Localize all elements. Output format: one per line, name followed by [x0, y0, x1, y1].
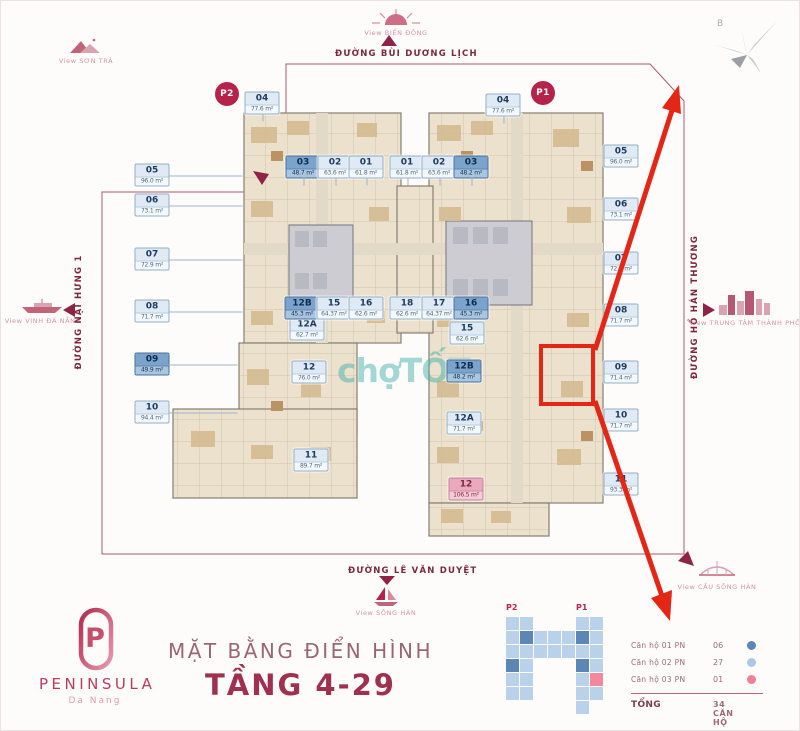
trung-tam-view-block: View TRUNG TÂM THÀNH PHỐ	[703, 289, 787, 327]
unit-connector-line	[262, 114, 263, 122]
legend-rows: Căn hộ 01 PN06Căn hộ 02 PN27Căn hộ 03 PN…	[631, 637, 773, 688]
unit-number: 03	[287, 157, 320, 170]
unit-connector-line	[169, 205, 243, 206]
mini-plan-cell	[548, 631, 561, 644]
unit-area: 73.1 m²	[136, 208, 169, 216]
cau-song-han-view-block: View CẦU SÔNG HÀN	[685, 557, 749, 591]
mini-plan-cell	[520, 659, 533, 672]
unit-number: 05	[605, 146, 638, 159]
unit-callout-p2-08: 0871.7 m²	[135, 300, 170, 323]
unit-area: 64.37 m²	[423, 311, 456, 319]
mini-plan-cell	[506, 645, 519, 658]
view-label-cau-song-han: View CẦU SÔNG HÀN	[678, 583, 757, 591]
unit-connector-line	[471, 178, 472, 186]
unit-area: 48.7 m²	[287, 170, 320, 178]
unit-area: 62.6 m²	[350, 311, 383, 319]
unit-callout-p1-09: 0971.4 m²	[604, 361, 639, 384]
legend-color-dot	[747, 658, 756, 667]
sun-icon	[368, 7, 424, 27]
unit-callout-p2-12a: 12A62.7 m²	[290, 318, 325, 341]
mini-plan-cell	[520, 687, 533, 700]
unit-callout-p1-18: 1862.6 m²	[390, 297, 425, 320]
unit-callout-p1-02: 0263.6 m²	[422, 156, 457, 179]
legend-row: Căn hộ 01 PN06	[631, 637, 773, 654]
ship-icon	[20, 297, 66, 315]
unit-connector-line	[335, 178, 336, 186]
unit-callout-p2-16: 1662.6 m²	[349, 297, 384, 320]
tower-badge-p2: P2	[215, 82, 239, 106]
title-line1: MẶT BẰNG ĐIỂN HÌNH	[158, 639, 443, 663]
unit-number: 12B	[448, 361, 481, 374]
unit-callout-p1-06: 0673.1 m²	[604, 198, 639, 221]
unit-callout-p2-06: 0673.1 m²	[135, 194, 170, 217]
page-title: MẶT BẰNG ĐIỂN HÌNH TẦNG 4-29	[158, 639, 443, 702]
unit-area: 61.8 m²	[391, 170, 424, 178]
brand-monogram: P	[39, 607, 151, 671]
unit-area: 45.3 m²	[286, 311, 319, 319]
legend-table: Căn hộ 01 PN06Căn hộ 02 PN27Căn hộ 03 PN…	[631, 637, 773, 727]
legend-color-dot	[747, 675, 756, 684]
unit-connector-line	[366, 178, 367, 186]
view-label-trung-tam: View TRUNG TÂM THÀNH PHỐ	[689, 319, 800, 327]
unit-callout-p1-15: 1562.6 m²	[450, 322, 485, 345]
mini-plan-cell	[590, 687, 603, 700]
unit-area: 76.0 m²	[293, 375, 326, 383]
unit-number: 02	[423, 157, 456, 170]
unit-number: 12B	[286, 298, 319, 311]
unit-callout-p2-12: 1276.0 m²	[292, 361, 327, 384]
mini-plan-cell	[590, 645, 603, 658]
unit-area: 106.5 m²	[450, 492, 483, 500]
unit-callout-p1-12a: 12A71.7 m²	[447, 412, 482, 435]
unit-area: 48.2 m²	[448, 374, 481, 382]
floor-plan-poster: chợTỐT 0477.6 m²0596.0 m²0673.1 m²0772.9…	[0, 0, 800, 731]
unit-callout-p1-07: 0772.9 m²	[604, 252, 639, 275]
mini-plan-tower-label-p1: P1	[576, 603, 588, 612]
unit-number: 15	[451, 323, 484, 336]
bridge-icon	[697, 557, 737, 581]
unit-connector-line	[503, 116, 504, 124]
unit-number: 10	[136, 402, 169, 415]
legend-row-value: 27	[713, 658, 747, 667]
unit-number: 15	[318, 298, 351, 311]
mini-plan-cell	[534, 645, 547, 658]
unit-callout-p1-03: 0348.2 m²	[454, 156, 489, 179]
unit-area: 62.7 m²	[291, 332, 324, 340]
unit-callout-p2-04: 0477.6 m²	[245, 92, 280, 115]
unit-area: 49.9 m²	[136, 367, 169, 375]
unit-connector-line	[439, 178, 440, 186]
unit-number: 09	[605, 362, 638, 375]
legend-row-label: Căn hộ 03 PN	[631, 675, 713, 684]
unit-callout-p1-05: 0596.0 m²	[604, 145, 639, 168]
unit-area: 71.7 m²	[136, 314, 169, 322]
view-label-bien-dong: View BIỂN ĐÔNG	[364, 29, 427, 37]
mini-plan-cell	[520, 673, 533, 686]
unit-area: 96.0 m²	[136, 178, 169, 186]
unit-connector-line	[303, 178, 304, 186]
unit-callout-p2-10: 1094.4 m²	[135, 401, 170, 424]
tower-badge-p1: P1	[531, 81, 555, 105]
unit-callout-p1-10: 1071.7 m²	[604, 409, 639, 432]
unit-number: 02	[319, 157, 352, 170]
unit-area: 48.2 m²	[455, 170, 488, 178]
unit-callout-p1-12b: 12B48.2 m²	[447, 360, 482, 383]
mini-plan-cell	[576, 645, 589, 658]
unit-connector-line	[169, 364, 238, 365]
unit-number: 06	[605, 199, 638, 212]
unit-area: 77.6 m²	[487, 108, 520, 116]
legend-row-value: 06	[713, 641, 747, 650]
unit-area: 93.3 m²	[605, 487, 638, 495]
sailboat-icon	[372, 585, 400, 607]
unit-connector-line	[169, 311, 243, 312]
mountain-icon	[68, 35, 104, 55]
mini-plan-cell	[576, 673, 589, 686]
mini-plan-cell	[590, 673, 603, 686]
unit-number: 06	[136, 195, 169, 208]
unit-callout-p2-09: 0949.9 m²	[135, 353, 170, 376]
unit-number: 03	[455, 157, 488, 170]
unit-number: 04	[246, 93, 279, 106]
unit-callout-p2-03: 0348.7 m²	[286, 156, 321, 179]
view-label-vinh-da-nang: View VỊNH ĐÀ NẴNG	[5, 317, 82, 325]
song-han-view-block: View SÔNG HÀN	[346, 585, 426, 617]
unit-callout-p2-12b: 12B45.3 m²	[285, 297, 320, 320]
unit-number: 18	[391, 298, 424, 311]
view-label-song-han: View SÔNG HÀN	[356, 609, 417, 617]
unit-number: 08	[136, 301, 169, 314]
title-line2: TẦNG 4-29	[158, 668, 443, 702]
top-street-block: View BIỂN ĐÔNG	[331, 7, 461, 37]
mini-plan-cell	[590, 659, 603, 672]
unit-connector-line	[169, 259, 243, 260]
unit-callout-p1-12: 12106.5 m²	[449, 478, 484, 501]
unit-callout-p1-17: 1764.37 m²	[422, 297, 457, 320]
unit-area: 62.6 m²	[451, 336, 484, 344]
unit-area: 72.9 m²	[605, 266, 638, 274]
unit-number: 07	[605, 253, 638, 266]
mini-plan-cell	[534, 631, 547, 644]
mini-plan-cell	[506, 659, 519, 672]
unit-area: 62.6 m²	[391, 311, 424, 319]
mini-plan-cell	[520, 631, 533, 644]
unit-area: 72.9 m²	[136, 262, 169, 270]
unit-number: 16	[455, 298, 488, 311]
mini-plan-cell	[506, 617, 519, 630]
unit-area: 77.6 m²	[246, 106, 279, 114]
legend-total-label: TỔNG	[631, 700, 713, 727]
unit-number: 01	[350, 157, 383, 170]
unit-area: 61.8 m²	[350, 170, 383, 178]
brand-monogram-letter: P	[85, 623, 105, 654]
brand-subname: Da Nang	[39, 696, 151, 706]
mini-plan-cell	[576, 617, 589, 630]
legend-total-row: TỔNG 34 CĂN HỘ	[631, 700, 773, 727]
unit-callout-p1-04: 0477.6 m²	[486, 94, 521, 117]
mini-plan-cell	[520, 645, 533, 658]
unit-number: 12A	[291, 319, 324, 332]
unit-number: 16	[350, 298, 383, 311]
brand-logo: P PENINSULA Da Nang	[39, 607, 151, 706]
street-label-top: ĐƯỜNG BÙI DƯƠNG LỊCH	[335, 49, 478, 59]
unit-area: 96.0 m²	[605, 159, 638, 167]
legend-row: Căn hộ 03 PN01	[631, 671, 773, 688]
unit-callout-p2-07: 0772.9 m²	[135, 248, 170, 271]
unit-callout-p1-08: 0871.7 m²	[604, 304, 639, 327]
mini-plan-cell	[548, 645, 561, 658]
unit-area: 71.7 m²	[605, 423, 638, 431]
unit-connector-line	[169, 412, 238, 413]
unit-number: 04	[487, 95, 520, 108]
unit-area: 89.7 m²	[295, 463, 328, 471]
unit-area: 63.6 m²	[319, 170, 352, 178]
legend-mini-plan: P2P1	[498, 601, 614, 723]
legend-row-label: Căn hộ 02 PN	[631, 658, 713, 667]
unit-area: 45.3 m²	[455, 311, 488, 319]
unit-number: 17	[423, 298, 456, 311]
view-label-son-tra: View SƠN TRÀ	[59, 57, 113, 65]
mini-plan-cell	[590, 617, 603, 630]
street-label-right: ĐƯỜNG HỒ HÁN THƯƠNG	[690, 235, 700, 379]
unit-number: 10	[605, 410, 638, 423]
legend-row-value: 01	[713, 675, 747, 684]
mini-plan-cell	[506, 631, 519, 644]
unit-callout-p1-11: 1193.3 m²	[604, 473, 639, 496]
mini-plan-cell	[576, 701, 589, 714]
unit-area: 71.4 m²	[605, 375, 638, 383]
mini-plan-cell	[576, 631, 589, 644]
son-tra-view-block: View SƠN TRÀ	[31, 35, 141, 65]
unit-callout-p2-11: 1189.7 m²	[294, 449, 329, 472]
city-skyline-icon	[717, 289, 773, 317]
mini-plan-cell	[562, 631, 575, 644]
unit-number: 11	[295, 450, 328, 463]
mini-plan-cell	[506, 673, 519, 686]
unit-area: 73.1 m²	[605, 212, 638, 220]
unit-number: 01	[391, 157, 424, 170]
unit-number: 07	[136, 249, 169, 262]
unit-callout-p1-16: 1645.3 m²	[454, 297, 489, 320]
unit-number: 12A	[448, 413, 481, 426]
mini-plan-cell	[590, 631, 603, 644]
legend-row-label: Căn hộ 01 PN	[631, 641, 713, 650]
unit-number: 12	[293, 362, 326, 375]
unit-connector-line	[407, 178, 408, 186]
unit-callout-p2-01: 0161.8 m²	[349, 156, 384, 179]
unit-number: 11	[605, 474, 638, 487]
unit-number: 12	[450, 479, 483, 492]
unit-callout-p2-05: 0596.0 m²	[135, 164, 170, 187]
vinh-da-nang-view-block: View VỊNH ĐÀ NẴNG	[13, 297, 73, 325]
legend-divider	[631, 693, 763, 694]
unit-number: 05	[136, 165, 169, 178]
unit-number: 09	[136, 354, 169, 367]
unit-connector-line	[169, 175, 243, 176]
street-label-left: ĐƯỜNG NẠI HƯNG 1	[74, 255, 84, 370]
unit-callout-p2-15: 1564.37 m²	[317, 297, 352, 320]
unit-area: 63.6 m²	[423, 170, 456, 178]
brand-name: PENINSULA	[39, 675, 151, 693]
mini-plan-cell	[520, 617, 533, 630]
unit-callout-p1-01: 0161.8 m²	[390, 156, 425, 179]
legend-total-value: 34 CĂN HỘ	[713, 700, 747, 727]
unit-number: 08	[605, 305, 638, 318]
unit-area: 71.7 m²	[448, 426, 481, 434]
legend-row: Căn hộ 02 PN27	[631, 654, 773, 671]
mini-plan-cell	[576, 687, 589, 700]
mini-plan-cell	[576, 659, 589, 672]
legend-color-dot	[747, 641, 756, 650]
street-label-bottom: ĐƯỜNG LÊ VĂN DUYỆT	[348, 566, 477, 576]
mini-plan-cell	[562, 645, 575, 658]
unit-callout-p2-02: 0263.6 m²	[318, 156, 353, 179]
unit-area: 94.4 m²	[136, 415, 169, 423]
mini-plan-cell	[506, 687, 519, 700]
unit-area: 71.7 m²	[605, 318, 638, 326]
mini-plan-tower-label-p2: P2	[506, 603, 517, 612]
unit-area: 64.37 m²	[318, 311, 351, 319]
